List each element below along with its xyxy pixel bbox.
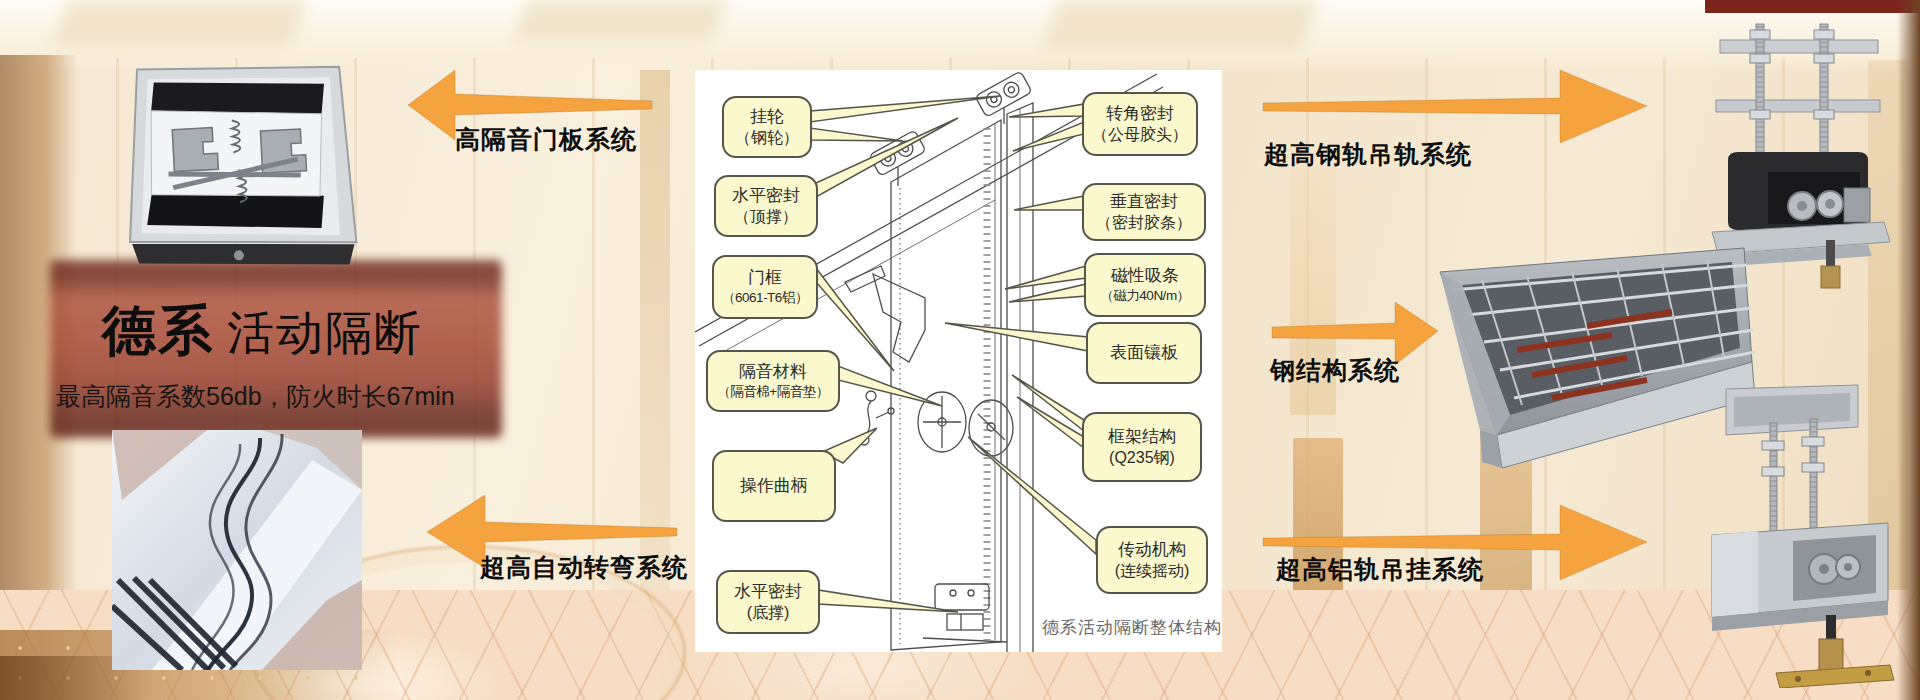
page-title: 德系 活动隔断 <box>102 295 423 368</box>
callout-detail: （钢轮） <box>735 128 799 149</box>
callout-pointer <box>1009 104 1084 117</box>
callout-pointer <box>816 118 958 197</box>
callout-pointer <box>1013 122 1084 151</box>
callout-detail: （隔音棉+隔音垫） <box>717 383 828 401</box>
callout-surface-panel: 表面镶板 <box>1086 322 1202 384</box>
callout-label: 表面镶板 <box>1110 342 1178 364</box>
callout-pointer <box>810 128 903 141</box>
callout-transmission: 传动机构 (连续摇动) <box>1096 526 1208 594</box>
callout-label: 磁性吸条 <box>1111 265 1179 287</box>
callout-magnetic-strip: 磁性吸条 （磁力40N/m） <box>1084 253 1206 317</box>
callout-pointer <box>818 590 958 612</box>
system-label-steel-structure: 钢结构系统 <box>1270 354 1400 387</box>
callout-detail: （磁力40N/m） <box>1100 287 1189 305</box>
callout-label: 转角密封 <box>1106 103 1174 125</box>
callout-label: 传动机构 <box>1118 539 1186 561</box>
system-label-auto-turning: 超高自动转弯系统 <box>480 551 688 584</box>
callout-detail: (底撑) <box>747 603 790 624</box>
callout-pointer <box>1005 266 1086 289</box>
callout-label: 隔音材料 <box>739 361 807 383</box>
callout-horizontal-seal-top: 水平密封 （顶撑） <box>714 175 818 237</box>
callout-corner-seal: 转角密封 （公母胶头） <box>1082 92 1198 156</box>
arrow-right-top <box>1258 62 1653 147</box>
callout-detail: (连续摇动) <box>1115 561 1190 582</box>
callout-frame-structure: 框架结构 (Q235钢) <box>1082 412 1202 482</box>
product-name: 活动隔断 <box>227 302 423 365</box>
callout-pointer <box>945 323 1088 351</box>
callout-operating-crank: 操作曲柄 <box>712 450 836 522</box>
slide: 德系 活动隔断 最高隔音系数56db，防火时长67min <box>0 0 1920 700</box>
callout-detail: (Q235钢) <box>1109 448 1175 469</box>
system-label-door-panel: 高隔音门板系统 <box>455 123 637 156</box>
callout-pointer <box>838 366 942 406</box>
system-label-aluminum-rail: 超高铝轨吊挂系统 <box>1276 553 1484 586</box>
callout-pointer <box>1012 375 1084 431</box>
callout-label: 水平密封 <box>734 581 802 603</box>
callout-horizontal-seal-bottom: 水平密封 (底撑) <box>716 570 820 634</box>
callout-label: 水平密封 <box>732 185 800 207</box>
callout-sound-insulation: 隔音材料 （隔音棉+隔音垫） <box>706 350 840 412</box>
callout-vertical-seal: 垂直密封 （密封胶条） <box>1082 183 1206 241</box>
callout-label: 框架结构 <box>1108 426 1176 448</box>
callout-label: 垂直密封 <box>1110 191 1178 213</box>
callout-label: 操作曲柄 <box>740 475 808 497</box>
callout-pointer <box>968 437 1096 554</box>
callout-label: 挂轮 <box>750 106 784 128</box>
callout-hanging-wheel: 挂轮 （钢轮） <box>722 96 812 158</box>
callout-pointer <box>810 96 1000 122</box>
callout-detail: （顶撑） <box>734 207 798 228</box>
brand-name: 德系 <box>102 295 214 368</box>
system-label-steel-rail: 超高钢轨吊轨系统 <box>1264 138 1472 171</box>
subtitle: 最高隔音系数56db，防火时长67min <box>56 380 455 413</box>
callout-detail: （公母胶头） <box>1092 125 1188 146</box>
callout-door-frame: 门框 （6061-T6铝） <box>712 255 818 319</box>
callout-detail: （6061-T6铝） <box>722 289 808 307</box>
callout-detail: （密封胶条） <box>1096 213 1192 234</box>
callout-label: 门框 <box>748 267 782 289</box>
callout-pointer <box>1014 196 1084 210</box>
